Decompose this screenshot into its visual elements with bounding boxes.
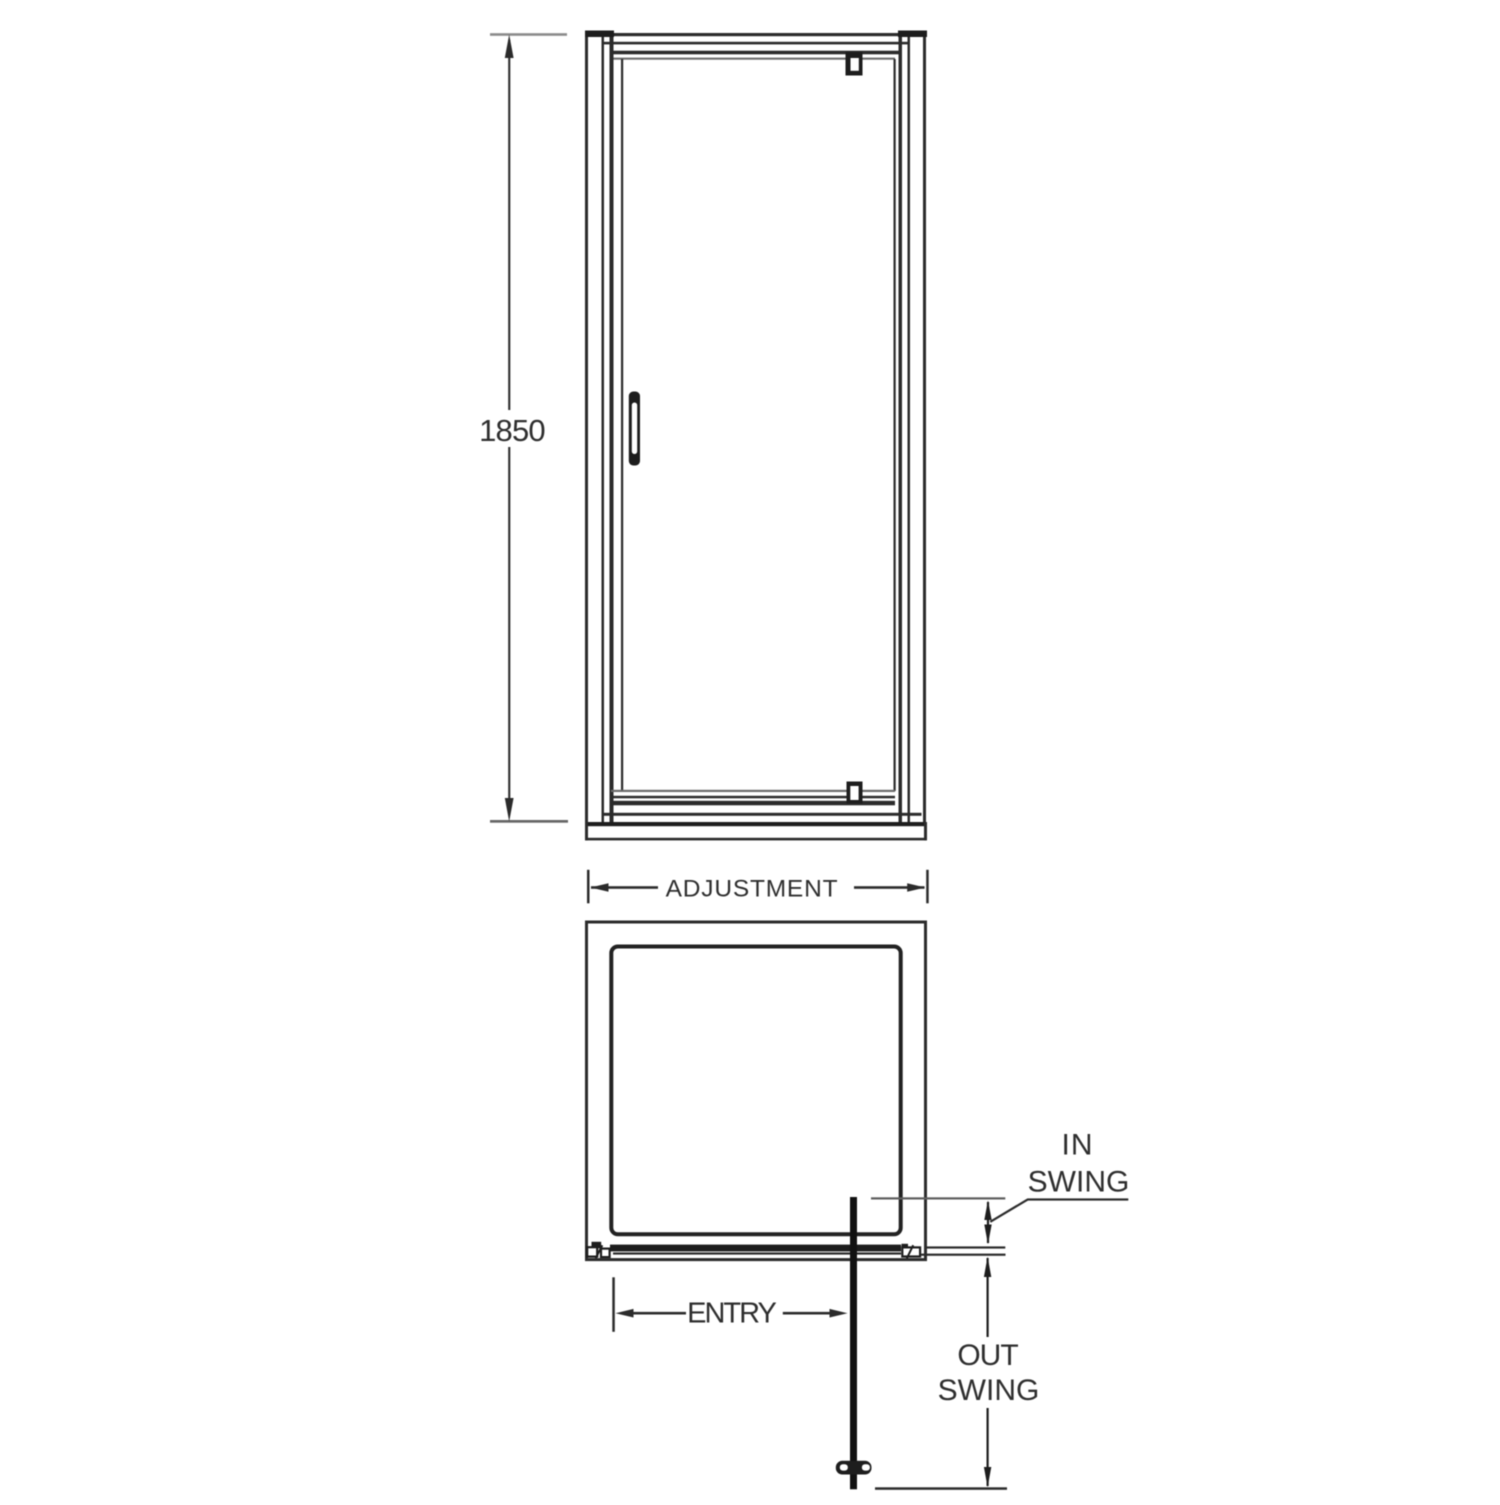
svg-text:OUT: OUT [957,1339,1018,1372]
svg-text:SWING: SWING [938,1374,1040,1407]
svg-text:SWING: SWING [1028,1166,1130,1199]
svg-text:ADJUSTMENT: ADJUSTMENT [666,875,839,902]
svg-text:1850: 1850 [479,413,545,448]
svg-text:ENTRY: ENTRY [687,1298,776,1330]
svg-text:IN: IN [1062,1129,1094,1162]
